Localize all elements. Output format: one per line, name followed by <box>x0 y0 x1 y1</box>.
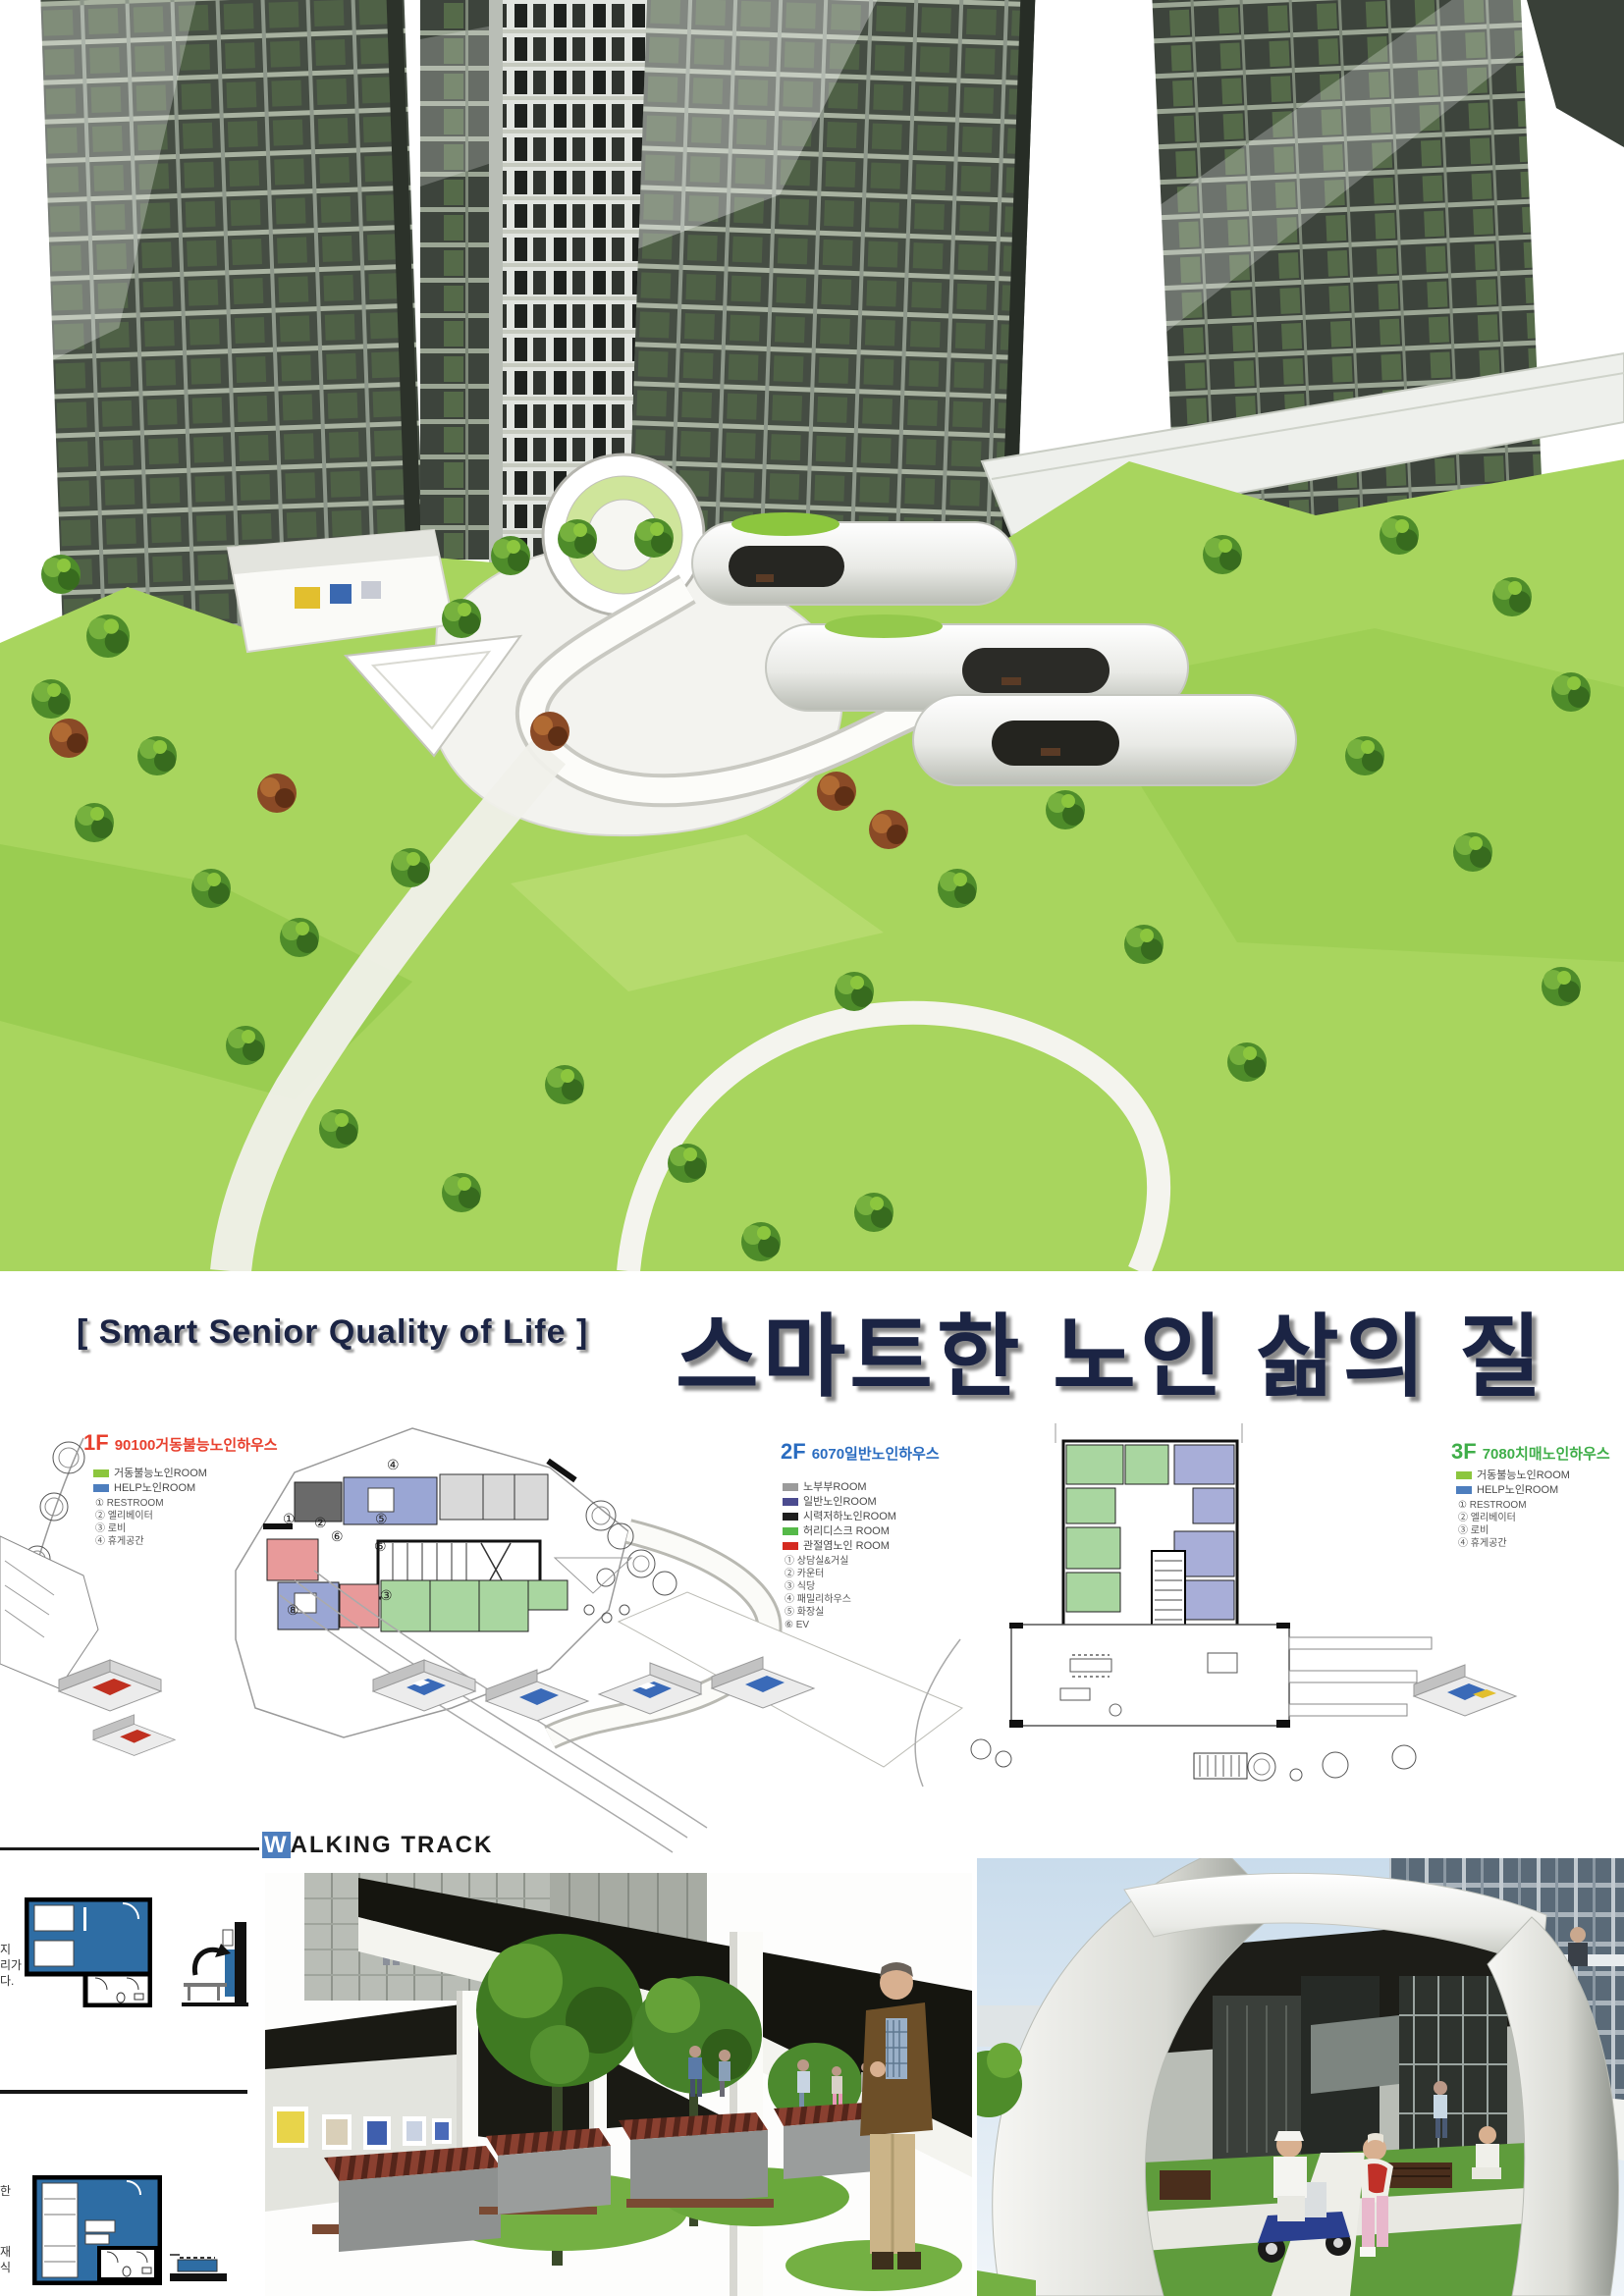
seat-section-diagram-1 <box>182 1922 250 2008</box>
legend-swatch-green2 <box>783 1527 798 1535</box>
presentation-board: [ Smart Senior Quality of Life ] 스마트한 노인… <box>0 0 1624 2296</box>
unit-plan-diagram-2 <box>32 2175 162 2285</box>
legend-swatch-blue <box>1456 1486 1472 1494</box>
section-divider <box>0 2090 247 2094</box>
legend-number: ④ 휴게공간 <box>1458 1537 1570 1550</box>
english-title: [ Smart Senior Quality of Life ] <box>77 1313 666 1352</box>
legend-swatch-green <box>1456 1471 1472 1479</box>
side-note-bottom-b: 재 식 <box>0 2244 11 2275</box>
walking-track-rest: ALKING TRACK <box>291 1832 494 1858</box>
tube-pavilion-rendering <box>977 1858 1624 2296</box>
svg-text:②: ② <box>314 1515 327 1530</box>
legend-number: ④ 패밀리하우스 <box>785 1593 896 1606</box>
legend-label: 관절염노인 ROOM <box>803 1539 890 1553</box>
legend-swatch-blue <box>93 1484 109 1492</box>
floor-label-3f: 3F7080치매노인하우스 <box>1451 1439 1610 1465</box>
unit-plan-diagram-1 <box>25 1897 152 2007</box>
legend-number: ⑤ 화장실 <box>785 1606 896 1619</box>
walking-person <box>1434 2081 1447 2138</box>
walking-track-w: W <box>262 1832 291 1858</box>
floor-label-1f: 1F90100거동불능노인하우스 <box>83 1430 278 1456</box>
walking-track-rule <box>0 1847 259 1850</box>
note-fragment: 한 <box>0 2183 11 2199</box>
legend-label: HELP노인ROOM <box>114 1481 195 1495</box>
note-fragment: 식 <box>0 2260 11 2275</box>
legend-row: 시력저하노인ROOM <box>783 1510 896 1523</box>
note-fragment: 리가 <box>0 1957 22 1973</box>
legend-swatch-gray <box>783 1483 798 1491</box>
legend-numbers-3f: ① RESTROOM ② 엘리베이터 ③ 로비 ④ 휴게공간 <box>1458 1499 1570 1550</box>
floor-title-1f: 90100거동불능노인하우스 <box>115 1437 278 1454</box>
side-note-bottom-a: 한 <box>0 2183 11 2199</box>
legend-swatch-green <box>93 1469 109 1477</box>
floor-number-2f: 2F <box>781 1439 806 1464</box>
legend-label: 시력저하노인ROOM <box>803 1510 896 1523</box>
note-fragment: 재 <box>0 2244 11 2260</box>
floor-label-2f: 2F6070일반노인하우스 <box>781 1439 940 1465</box>
legend-row: HELP노인ROOM <box>93 1481 207 1495</box>
svg-text:④: ④ <box>387 1457 400 1472</box>
legend-number: ① RESTROOM <box>95 1497 207 1510</box>
legend-row: HELP노인ROOM <box>1456 1483 1570 1497</box>
legend-number: ② 엘리베이터 <box>95 1510 207 1522</box>
svg-text:⑥: ⑥ <box>331 1528 344 1544</box>
legend-label: HELP노인ROOM <box>1477 1483 1558 1497</box>
legend-row: 허리디스크 ROOM <box>783 1524 896 1538</box>
legend-numbers-2f: ① 상담실&거실 ② 카운터 ③ 식당 ④ 패밀리하우스 ⑤ 화장실 ⑥ EV <box>785 1555 896 1631</box>
legend-row: 노부부ROOM <box>783 1480 896 1494</box>
legend-number: ④ 휴게공간 <box>95 1535 207 1548</box>
legend-label: 허리디스크 ROOM <box>803 1524 890 1538</box>
legend-row: 거동불능노인ROOM <box>93 1467 207 1480</box>
legend-swatch-black <box>783 1513 798 1521</box>
legend-label: 노부부ROOM <box>803 1480 867 1494</box>
legend-number: ③ 식당 <box>785 1580 896 1593</box>
legend-numbers-1f: ① RESTROOM ② 엘리베이터 ③ 로비 ④ 휴게공간 <box>95 1497 207 1548</box>
svg-text:①: ① <box>283 1511 296 1526</box>
note-fragment: 지 <box>0 1942 22 1957</box>
legend-number: ② 카운터 <box>785 1568 896 1580</box>
legend-number: ③ 로비 <box>95 1522 207 1535</box>
svg-text:⑤: ⑤ <box>374 1538 387 1554</box>
legend-number: ① 상담실&거실 <box>785 1555 896 1568</box>
legend-swatch-red <box>783 1542 798 1550</box>
legend-2f: 노부부ROOM 일반노인ROOM 시력저하노인ROOM 허리디스크 ROOM 관… <box>783 1480 896 1631</box>
walking-track-rendering <box>265 1873 972 2296</box>
legend-swatch-navy <box>783 1498 798 1506</box>
floor-number-3f: 3F <box>1451 1439 1477 1464</box>
floor-number-1f: 1F <box>83 1430 109 1455</box>
left-edge-plan-fragment <box>0 1438 98 1688</box>
legend-number: ③ 로비 <box>1458 1524 1570 1537</box>
legend-row: 거동불능노인ROOM <box>1456 1468 1570 1482</box>
note-fragment: 다. <box>0 1973 22 1989</box>
legend-label: 거동불능노인ROOM <box>1477 1468 1570 1482</box>
legend-3f: 거동불능노인ROOM HELP노인ROOM ① RESTROOM ② 엘리베이터… <box>1456 1468 1570 1550</box>
legend-number: ① RESTROOM <box>1458 1499 1570 1512</box>
svg-text:⑤: ⑤ <box>375 1511 388 1526</box>
tower-corner-mass <box>1527 0 1624 147</box>
hero-rendering <box>0 0 1624 1271</box>
plan-upper-floor <box>915 1423 1432 1787</box>
floor-title-2f: 6070일반노인하우스 <box>812 1446 940 1463</box>
legend-1f: 거동불능노인ROOM HELP노인ROOM ① RESTROOM ② 엘리베이터… <box>93 1467 207 1548</box>
legend-number: ② 엘리베이터 <box>1458 1512 1570 1524</box>
walking-track-heading: WALKING TRACK <box>262 1832 493 1859</box>
floor-title-3f: 7080치매노인하우스 <box>1483 1446 1610 1463</box>
legend-label: 거동불능노인ROOM <box>114 1467 207 1480</box>
seat-section-diagram-2 <box>170 2248 229 2283</box>
legend-label: 일반노인ROOM <box>803 1495 877 1509</box>
legend-row: 일반노인ROOM <box>783 1495 896 1509</box>
side-note-top: 지 리가 다. <box>0 1942 22 1989</box>
korean-title: 스마트한 노인 삶의 질 <box>676 1284 1624 1415</box>
legend-row: 관절염노인 ROOM <box>783 1539 896 1553</box>
svg-text:③: ③ <box>380 1587 393 1603</box>
legend-number: ⑥ EV <box>785 1619 896 1631</box>
svg-text:⑧: ⑧ <box>287 1602 299 1618</box>
